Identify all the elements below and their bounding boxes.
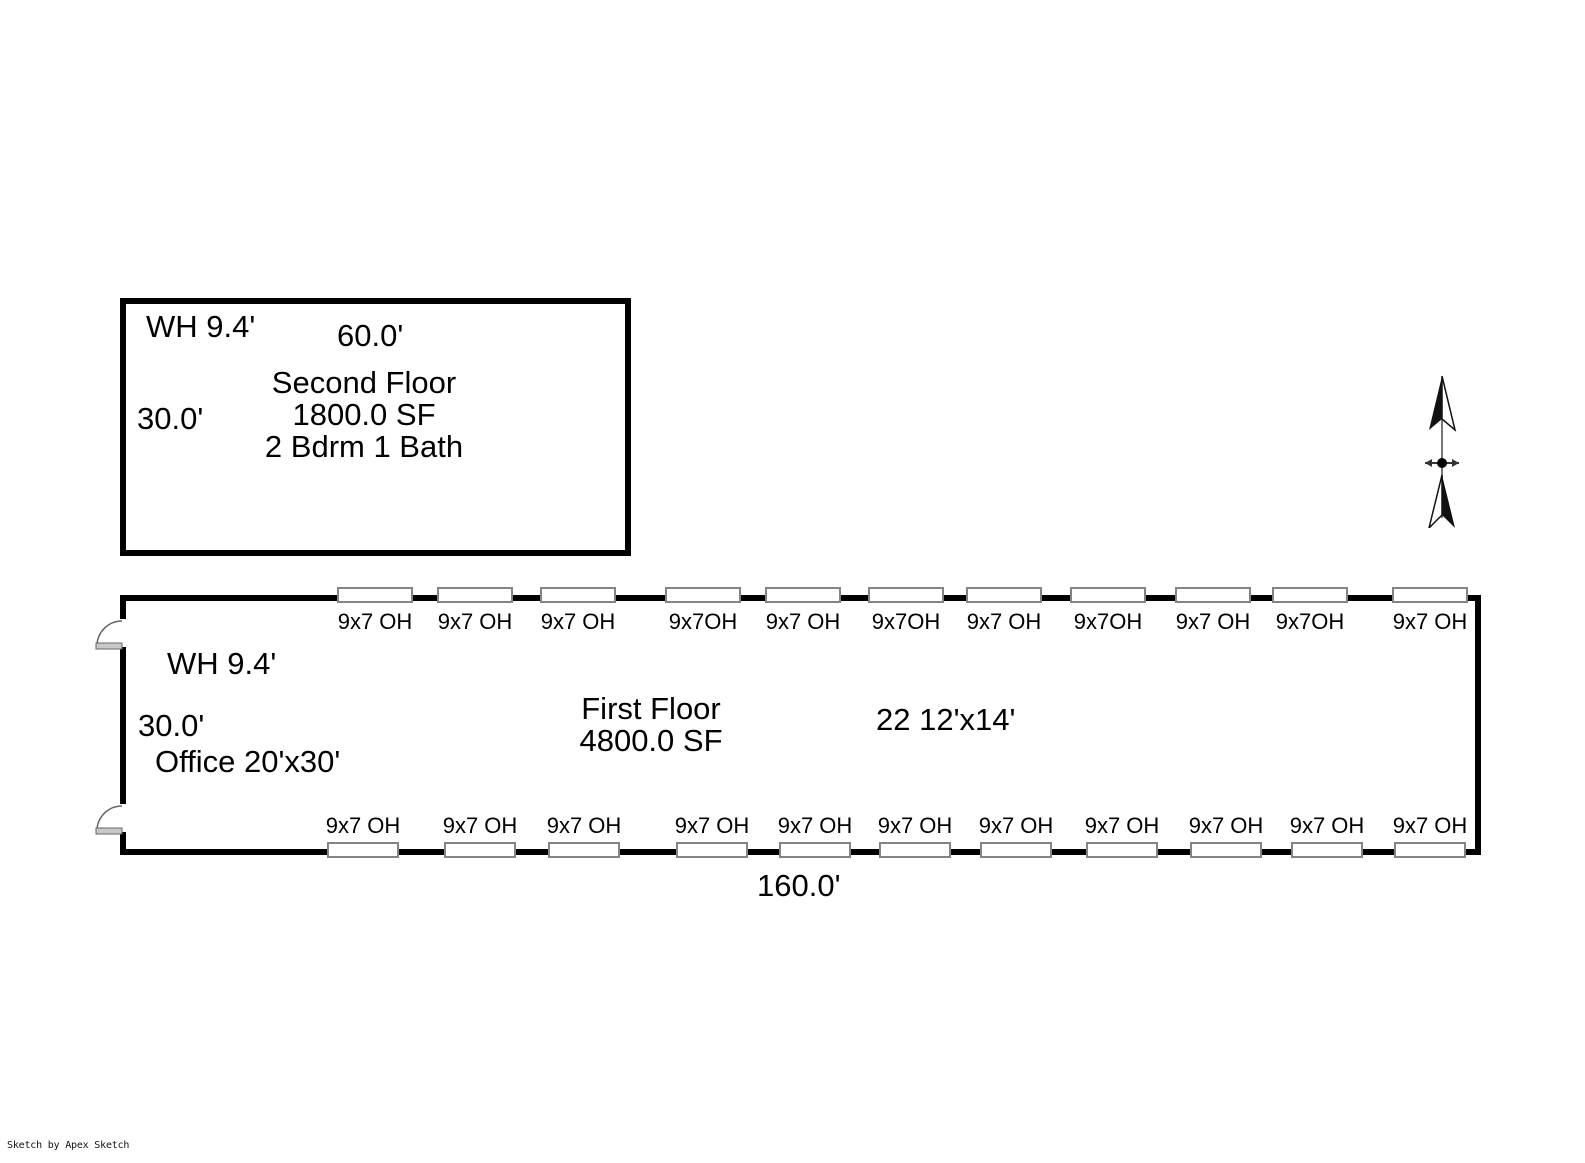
- overhead-door: [980, 842, 1052, 858]
- overhead-door: [779, 842, 851, 858]
- first-floor-units-label: 22 12'x14': [876, 703, 1015, 737]
- overhead-door: [437, 587, 513, 603]
- overhead-door: [966, 587, 1042, 603]
- overhead-door: [665, 587, 741, 603]
- overhead-door: [1070, 587, 1146, 603]
- second-floor-height-dimension: 30.0': [137, 402, 203, 436]
- overhead-door-label: 9x7 OH: [1077, 815, 1167, 837]
- overhead-door: [548, 842, 620, 858]
- first-floor-info: First Floor 4800.0 SF: [501, 693, 801, 757]
- overhead-door: [765, 587, 841, 603]
- overhead-door: [879, 842, 951, 858]
- overhead-door: [1175, 587, 1251, 603]
- first-floor-title: First Floor: [501, 693, 801, 725]
- overhead-door: [1392, 587, 1468, 603]
- north-arrow-icon: [1412, 368, 1472, 528]
- overhead-door-label: 9x7OH: [861, 611, 951, 633]
- overhead-door-label: 9x7 OH: [667, 815, 757, 837]
- second-floor-area: 1800.0 SF: [214, 399, 514, 431]
- swing-door-icon: [94, 803, 128, 835]
- overhead-door: [1291, 842, 1363, 858]
- overhead-door-label: 9x7 OH: [1385, 815, 1475, 837]
- swing-door-icon: [94, 618, 128, 650]
- second-floor-info: Second Floor 1800.0 SF 2 Bdrm 1 Bath: [214, 367, 514, 463]
- overhead-door: [540, 587, 616, 603]
- floor-plan-sketch: WH 9.4' 60.0' 30.0' Second Floor 1800.0 …: [0, 0, 1585, 1163]
- overhead-door: [327, 842, 399, 858]
- first-floor-height-dimension: 30.0': [138, 709, 204, 743]
- overhead-door-label: 9x7OH: [1265, 611, 1355, 633]
- overhead-door: [1086, 842, 1158, 858]
- overhead-door: [1272, 587, 1348, 603]
- overhead-door: [1190, 842, 1262, 858]
- overhead-door-label: 9x7 OH: [430, 611, 520, 633]
- overhead-door-label: 9x7 OH: [1385, 611, 1475, 633]
- second-floor-width-dimension: 60.0': [337, 319, 403, 353]
- overhead-door-label: 9x7 OH: [539, 815, 629, 837]
- overhead-door-label: 9x7 OH: [770, 815, 860, 837]
- overhead-door-label: 9x7 OH: [435, 815, 525, 837]
- first-floor-area: 4800.0 SF: [501, 725, 801, 757]
- overhead-door-label: 9x7 OH: [1282, 815, 1372, 837]
- overhead-door-label: 9x7 OH: [758, 611, 848, 633]
- overhead-door: [676, 842, 748, 858]
- overhead-door: [337, 587, 413, 603]
- overhead-door: [868, 587, 944, 603]
- overhead-door-label: 9x7 OH: [1168, 611, 1258, 633]
- overhead-door-label: 9x7 OH: [330, 611, 420, 633]
- overhead-door-label: 9x7 OH: [959, 611, 1049, 633]
- overhead-door-label: 9x7 OH: [870, 815, 960, 837]
- sketch-credit: Sketch by Apex Sketch: [7, 1140, 129, 1151]
- overhead-door: [444, 842, 516, 858]
- first-floor-width-dimension: 160.0': [757, 869, 841, 903]
- overhead-door-label: 9x7 OH: [971, 815, 1061, 837]
- overhead-door-label: 9x7 OH: [318, 815, 408, 837]
- second-floor-wall-height: WH 9.4': [146, 310, 255, 344]
- second-floor-title: Second Floor: [214, 367, 514, 399]
- second-floor-rooms: 2 Bdrm 1 Bath: [214, 431, 514, 463]
- overhead-door-label: 9x7OH: [658, 611, 748, 633]
- first-floor-office-label: Office 20'x30': [155, 745, 340, 779]
- first-floor-wall-height: WH 9.4': [167, 647, 276, 681]
- overhead-door: [1394, 842, 1466, 858]
- overhead-door-label: 9x7 OH: [1181, 815, 1271, 837]
- overhead-door-label: 9x7OH: [1063, 611, 1153, 633]
- overhead-door-label: 9x7 OH: [533, 611, 623, 633]
